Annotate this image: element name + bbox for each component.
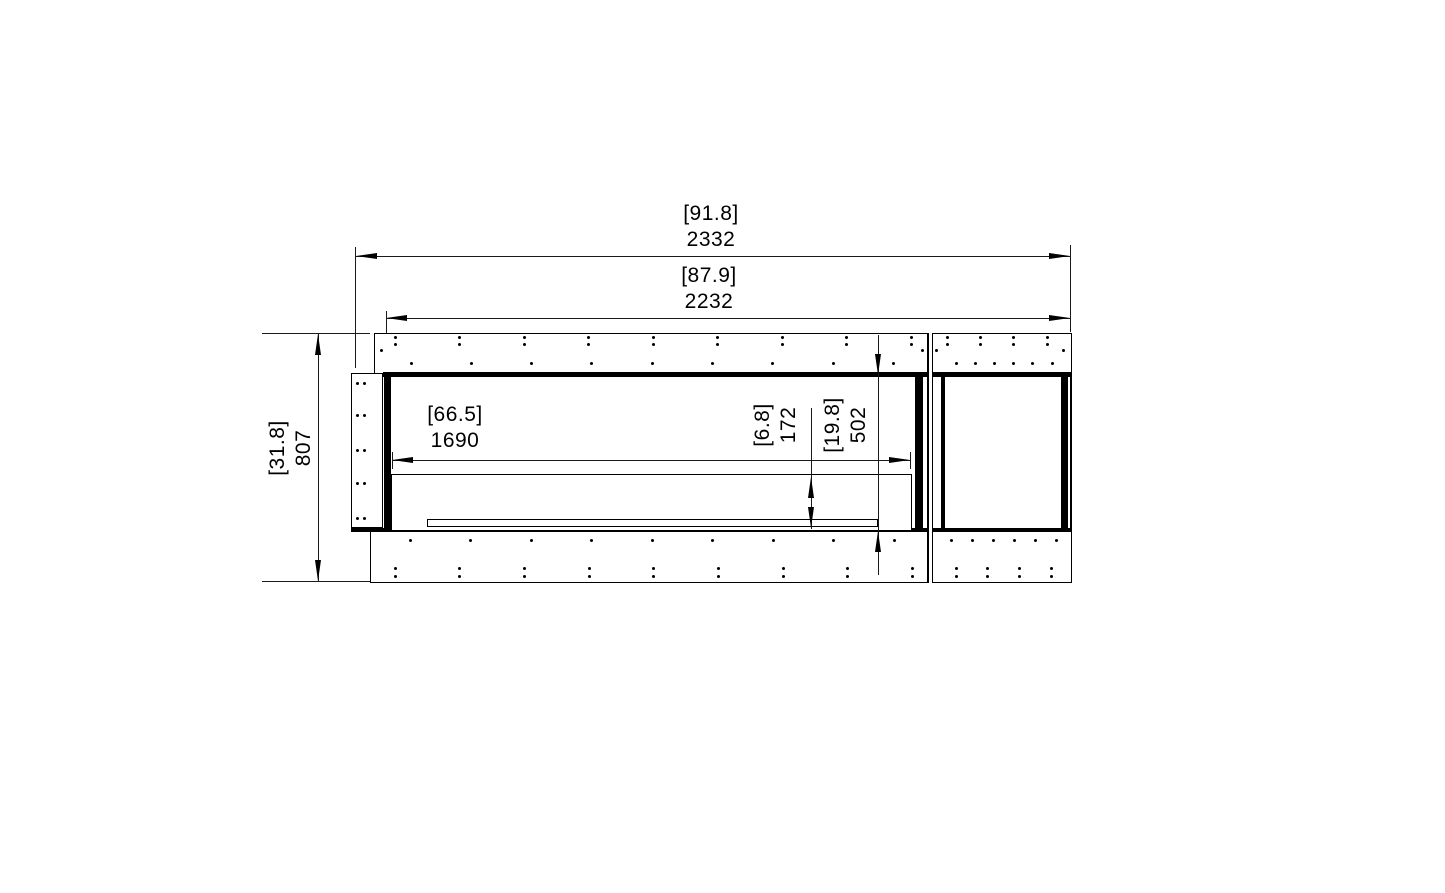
rivet-dot	[946, 336, 949, 339]
dim-burner-width-tick-right	[910, 452, 911, 469]
rivet-dot	[652, 575, 655, 578]
rivet-dot	[1013, 539, 1016, 542]
rivet-dot	[1031, 362, 1034, 365]
rivet-dot	[1034, 539, 1037, 542]
rivet-dot	[652, 567, 655, 570]
rivet-dot	[1012, 336, 1015, 339]
rivet-dot	[1046, 343, 1049, 346]
rivet-dot	[363, 482, 366, 485]
rivet-dot	[1050, 567, 1053, 570]
rivet-dot	[523, 567, 526, 570]
rivet-dot	[910, 336, 913, 339]
top-flange-right	[932, 333, 1072, 374]
rivet-dot	[394, 343, 397, 346]
rivet-dot	[394, 575, 397, 578]
body-right-edge	[927, 333, 929, 583]
dim-overall-width-arrow-left	[356, 253, 377, 259]
rivet-dot	[356, 482, 359, 485]
rivet-dot	[523, 575, 526, 578]
dim-inner-width-metric: 2232	[609, 289, 809, 315]
rivet-dot	[1012, 343, 1015, 346]
rivet-dot	[1018, 567, 1021, 570]
rivet-dot	[1046, 336, 1049, 339]
top-flange-left	[374, 333, 928, 374]
dim-tray-height-imperial: [6.8]	[750, 395, 776, 455]
rivet-dot	[363, 382, 366, 385]
rivet-dot	[950, 539, 953, 542]
right-glass-panel	[915, 372, 923, 532]
rivet-dot	[1012, 362, 1015, 365]
dim-overall-height-arrow-top	[315, 334, 321, 355]
rivet-dot	[717, 575, 720, 578]
dim-overall-width-imperial: [91.8]	[611, 201, 811, 227]
rivet-dot	[380, 349, 383, 352]
rivet-dot	[651, 539, 654, 542]
dim-overall-width-label: [91.8] 2332	[611, 201, 811, 253]
rivet-dot	[711, 539, 714, 542]
dim-overall-width-ext-left	[355, 247, 356, 368]
rivet-dot	[588, 567, 591, 570]
rivet-dot	[845, 336, 848, 339]
rivet-dot	[458, 343, 461, 346]
dim-burner-width-tick-left	[392, 452, 393, 469]
rivet-dot	[530, 362, 533, 365]
rivet-dot	[716, 343, 719, 346]
rivet-dot	[921, 349, 924, 352]
dim-inner-width-line	[386, 318, 1070, 319]
rivet-dot	[832, 362, 835, 365]
dim-opening-height-arrow-bottom	[875, 531, 881, 552]
dim-width-ext-right	[1070, 245, 1071, 332]
rivet-dot	[1050, 575, 1053, 578]
rivet-dot	[356, 414, 359, 417]
rivet-dot	[782, 567, 785, 570]
rivet-dot	[979, 336, 982, 339]
dim-inner-width-label: [87.9] 2232	[609, 263, 809, 315]
dim-overall-height-ext-bottom	[262, 581, 370, 582]
rivet-dot	[971, 539, 974, 542]
dim-tray-height-arrow-bottom	[808, 507, 814, 528]
body-top-line	[383, 372, 929, 377]
rivet-dot	[892, 362, 895, 365]
rivet-dot	[717, 567, 720, 570]
dim-overall-width-line	[356, 256, 1070, 257]
rivet-dot	[363, 517, 366, 520]
rivet-dot	[772, 539, 775, 542]
dim-overall-height-metric: 807	[291, 413, 317, 483]
rivet-dot	[955, 567, 958, 570]
dim-burner-width-line	[392, 460, 910, 461]
rivet-dot	[458, 336, 461, 339]
rivet-dot	[356, 517, 359, 520]
rivet-dot	[651, 362, 654, 365]
rivet-dot	[781, 336, 784, 339]
rivet-dot	[845, 343, 848, 346]
dim-inner-width-arrow-right	[1049, 315, 1070, 321]
dim-overall-height-label: [31.8] 807	[265, 413, 317, 483]
rivet-dot	[652, 343, 655, 346]
technical-drawing: [91.8] 2332 [87.9] 2232 [31.8] 807 [66.5…	[0, 0, 1445, 893]
rivet-dot	[716, 336, 719, 339]
rivet-dot	[910, 343, 913, 346]
rivet-dot	[955, 362, 958, 365]
rivet-dot	[781, 343, 784, 346]
rivet-dot	[1055, 539, 1058, 542]
dim-overall-height-arrow-bottom	[315, 560, 321, 581]
rivet-dot	[1051, 362, 1054, 365]
dim-overall-height-ext-top	[262, 333, 370, 334]
rivet-dot	[356, 382, 359, 385]
bottom-flange-left	[370, 530, 928, 583]
rivet-dot	[911, 567, 914, 570]
dim-overall-width-metric: 2332	[611, 227, 811, 253]
dim-burner-width-arrow-left	[392, 457, 413, 463]
rivet-dot	[588, 575, 591, 578]
dim-inner-width-imperial: [87.9]	[609, 263, 809, 289]
dim-opening-height-label: [19.8] 502	[820, 390, 872, 460]
dim-overall-width-arrow-right	[1049, 253, 1070, 259]
rivet-dot	[458, 567, 461, 570]
compartment-left-edge	[932, 333, 934, 583]
rivet-dot	[1018, 575, 1021, 578]
rivet-dot	[1062, 349, 1065, 352]
rivet-dot	[394, 336, 397, 339]
rivet-dot	[530, 539, 533, 542]
rivet-dot	[911, 575, 914, 578]
rivet-dot	[935, 349, 938, 352]
rivet-dot	[356, 449, 359, 452]
compartment-right-edge	[1070, 372, 1072, 532]
rivet-dot	[590, 539, 593, 542]
rivet-dot	[782, 575, 785, 578]
rivet-dot	[955, 575, 958, 578]
compartment-inner-wall	[941, 375, 945, 529]
rivet-dot	[394, 567, 397, 570]
dim-inner-width-arrow-left	[386, 315, 407, 321]
dim-tray-height-label: [6.8] 172	[750, 395, 802, 455]
rivet-dot	[974, 362, 977, 365]
rivet-dot	[469, 539, 472, 542]
rivet-dot	[363, 414, 366, 417]
rivet-dot	[946, 343, 949, 346]
rivet-dot	[587, 343, 590, 346]
rivet-dot	[832, 539, 835, 542]
rivet-dot	[523, 336, 526, 339]
rivet-dot	[587, 336, 590, 339]
rivet-dot	[523, 343, 526, 346]
compartment-top-line	[932, 372, 1072, 377]
dim-opening-height-imperial: [19.8]	[820, 390, 846, 460]
dim-overall-height-line	[318, 334, 319, 581]
rivet-dot	[979, 343, 982, 346]
dim-tray-height-arrow-top	[808, 477, 814, 498]
rivet-dot	[363, 449, 366, 452]
rivet-dot	[410, 362, 413, 365]
dim-overall-height-imperial: [31.8]	[265, 413, 291, 483]
dim-opening-height-arrow-top	[875, 354, 881, 375]
rivet-dot	[993, 362, 996, 365]
rivet-dot	[992, 539, 995, 542]
rivet-dot	[893, 539, 896, 542]
rivet-dot	[771, 362, 774, 365]
compartment-glass-panel	[1061, 375, 1068, 529]
rivet-dot	[652, 336, 655, 339]
rivet-dot	[458, 575, 461, 578]
dim-tray-height-metric: 172	[776, 395, 802, 455]
rivet-dot	[711, 362, 714, 365]
dim-burner-width-arrow-right	[889, 457, 910, 463]
rivet-dot	[409, 539, 412, 542]
rivet-dot	[470, 362, 473, 365]
compartment-bottom-line	[932, 528, 1072, 533]
rivet-dot	[986, 567, 989, 570]
rivet-dot	[986, 575, 989, 578]
left-glass-panel	[384, 372, 391, 532]
dim-opening-height-metric: 502	[846, 390, 872, 460]
